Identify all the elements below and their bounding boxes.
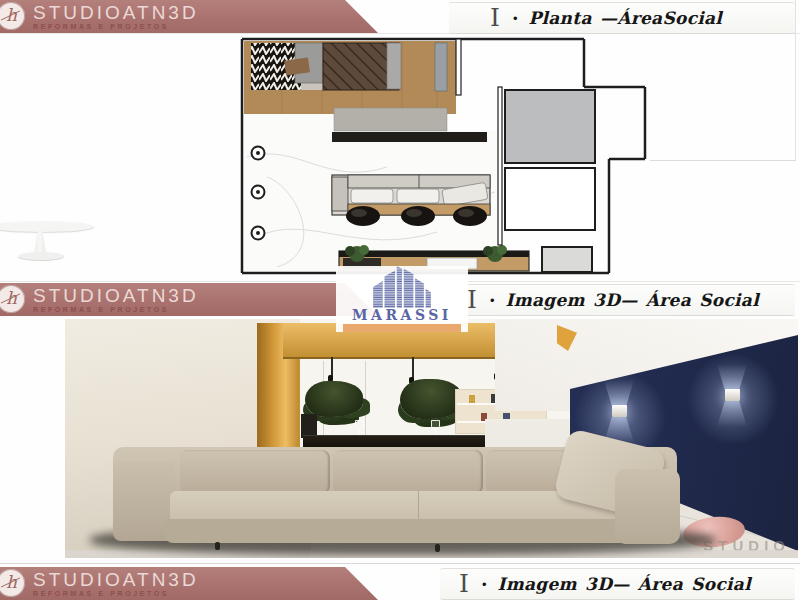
plan-gray-landing xyxy=(334,108,447,131)
render-3d-image: STUDIO xyxy=(65,319,798,558)
plan-poufs xyxy=(346,206,487,226)
page-edge-line xyxy=(795,0,796,160)
sofa-leg xyxy=(435,544,440,552)
brand-logo: h xyxy=(0,285,25,313)
bullet-icon: • xyxy=(482,577,487,592)
wine-glass-icon xyxy=(431,420,440,436)
wall-sconce-icon xyxy=(725,389,740,401)
wine-glass-icon xyxy=(355,420,364,436)
sofa-leg xyxy=(215,542,220,550)
bullet-icon: • xyxy=(513,11,518,26)
tulip-side-table xyxy=(0,221,94,265)
table-top xyxy=(0,221,94,232)
section-header-planta: I • Planta —ÁreaSocial xyxy=(449,2,795,34)
sofa-cushion xyxy=(333,450,483,494)
plan-storage-white xyxy=(505,168,595,230)
brand-banner-top: h STUDIOATN3D REFORMAS E PROJETOS xyxy=(0,0,378,33)
plan-storage-gray xyxy=(505,90,595,163)
floor-plan-drawing xyxy=(237,37,647,275)
shelf-item xyxy=(469,395,475,403)
plan-storage-small xyxy=(542,247,592,272)
brand-name: STUDIOATN3D xyxy=(33,286,199,305)
window-frame-line xyxy=(365,361,366,435)
wall-sconce-icon xyxy=(612,405,627,417)
brand-tagline: REFORMAS E PROJETOS xyxy=(33,590,199,597)
section-header-imagem-footer: I • Imagem 3D— Área Social xyxy=(440,568,795,600)
marassi-logo: MARASSI xyxy=(336,266,468,332)
section-header-imagem: I • Imagem 3D— Área Social xyxy=(440,284,795,316)
brand-tagline: REFORMAS E PROJETOS xyxy=(33,23,199,30)
bullet-icon: • xyxy=(490,293,495,308)
separator-line xyxy=(650,160,796,161)
sofa-armrest-right xyxy=(615,469,680,544)
brand-text-block: STUDIOATN3D REFORMAS E PROJETOS xyxy=(33,570,199,597)
plan-inner-wall xyxy=(498,87,502,245)
section-title-planta: Planta —ÁreaSocial xyxy=(528,8,722,28)
sofa-cushion xyxy=(180,450,330,494)
presentation-page: h STUDIOATN3D REFORMAS E PROJETOS I • Pl… xyxy=(0,0,800,600)
sofa-base xyxy=(165,519,670,543)
brand-banner-bottom: h STUDIOATN3D REFORMAS E PROJETOS xyxy=(0,567,378,600)
text-cursor-icon: I xyxy=(490,5,500,31)
hanging-plant xyxy=(400,379,462,419)
section-title-imagem-footer: Imagem 3D— Área Social xyxy=(497,574,750,594)
separator-line xyxy=(0,563,800,564)
brand-name: STUDIOATN3D xyxy=(33,570,199,589)
marassi-name: MARASSI xyxy=(336,308,468,323)
brand-text-block: STUDIOATN3D REFORMAS E PROJETOS xyxy=(33,286,199,313)
hanging-plant xyxy=(305,381,363,417)
brand-tagline: REFORMAS E PROJETOS xyxy=(33,306,199,313)
marassi-underline xyxy=(343,324,461,332)
brand-logo: h xyxy=(0,2,25,30)
section-title-imagem: Imagem 3D— Área Social xyxy=(505,290,758,310)
brand-banner-middle: h STUDIOATN3D REFORMAS E PROJETOS xyxy=(0,283,378,316)
table-base xyxy=(18,252,64,260)
text-cursor-icon: I xyxy=(459,571,469,597)
brand-name: STUDIOATN3D xyxy=(33,3,199,22)
table-stem xyxy=(34,230,46,254)
buildings-icon xyxy=(367,266,437,308)
brand-text-block: STUDIOATN3D REFORMAS E PROJETOS xyxy=(33,3,199,30)
brand-logo: h xyxy=(0,569,25,597)
plan-inner-wall xyxy=(456,39,461,95)
text-cursor-icon: I xyxy=(467,287,477,313)
plan-tv-panel xyxy=(332,132,487,142)
